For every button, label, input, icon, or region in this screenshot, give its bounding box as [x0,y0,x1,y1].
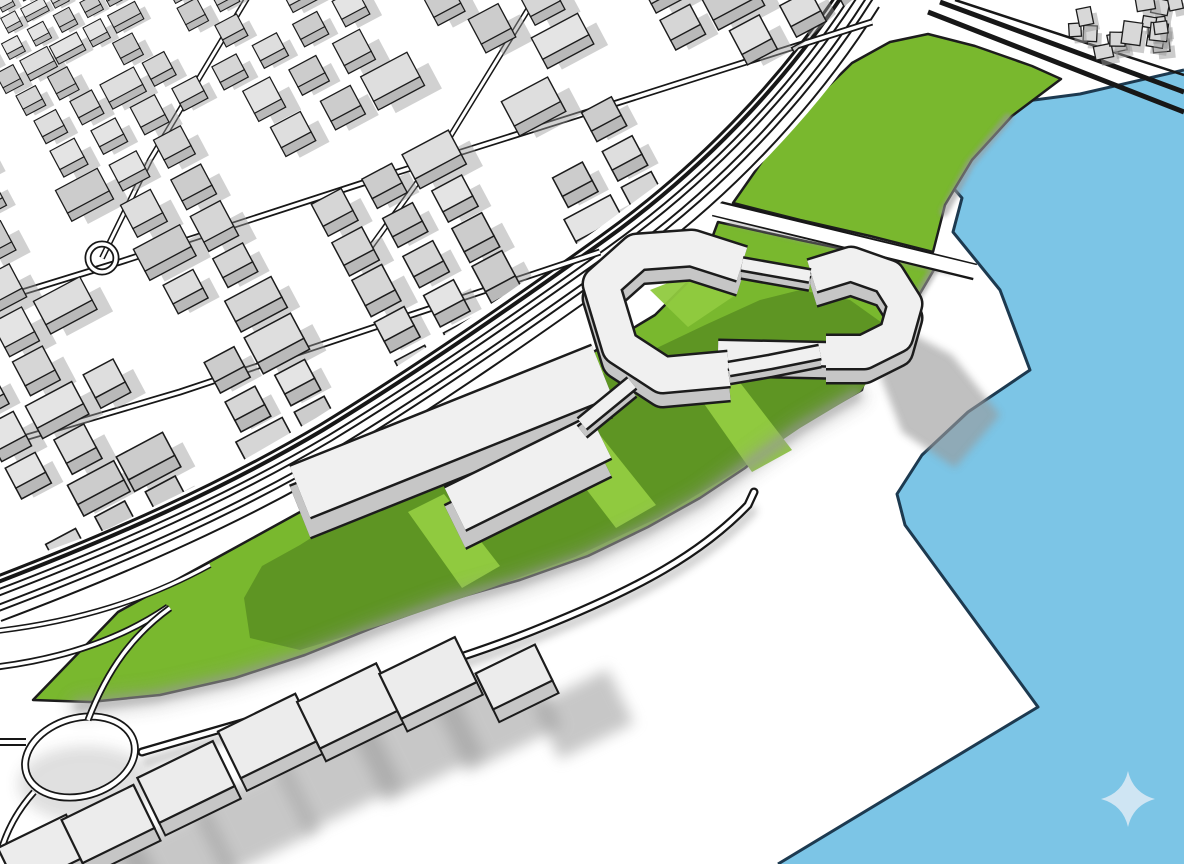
rendering-canvas [0,0,1184,864]
urban-massing-rendering [0,0,1184,864]
bridge-north [742,264,810,284]
